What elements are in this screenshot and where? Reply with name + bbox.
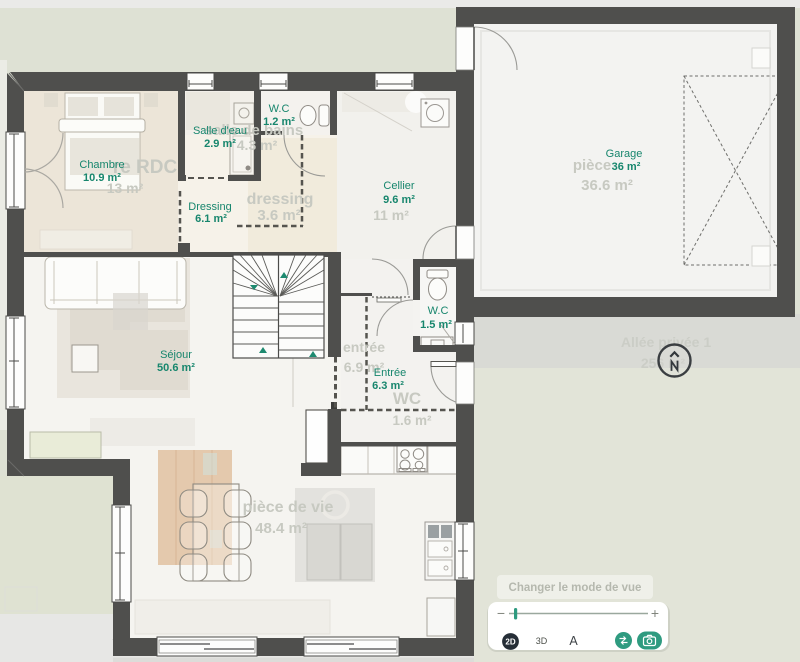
svg-text:36.6 m²: 36.6 m² [581, 177, 633, 194]
svg-text:6.1 m²: 6.1 m² [195, 213, 227, 225]
svg-text:entrée: entrée [343, 339, 385, 355]
svg-text:pièce de vie: pièce de vie [243, 499, 334, 516]
svg-text:Chambre: Chambre [79, 159, 124, 171]
svg-text:50.6 m²: 50.6 m² [157, 362, 195, 374]
svg-text:−: − [497, 605, 505, 621]
svg-text:10.9 m²: 10.9 m² [83, 172, 121, 184]
svg-text:W.C: W.C [269, 103, 290, 115]
svg-text:+: + [651, 605, 659, 621]
svg-text:Changer le mode de vue: Changer le mode de vue [509, 582, 642, 594]
svg-text:Entrée: Entrée [374, 367, 406, 379]
svg-text:Salle d'eau: Salle d'eau [193, 125, 247, 137]
svg-text:36 m²: 36 m² [612, 161, 641, 173]
svg-text:Cellier: Cellier [383, 180, 415, 192]
svg-text:1.6 m²: 1.6 m² [392, 413, 432, 428]
svg-text:A: A [569, 634, 578, 648]
svg-text:W.C: W.C [428, 305, 449, 317]
svg-text:6.3 m²: 6.3 m² [372, 380, 404, 392]
svg-text:1.5 m²: 1.5 m² [420, 319, 452, 331]
svg-text:11 m²: 11 m² [373, 207, 409, 223]
svg-text:1.2 m²: 1.2 m² [263, 116, 295, 128]
svg-text:4.3 m²: 4.3 m² [237, 137, 278, 153]
svg-text:dressing: dressing [247, 191, 314, 208]
svg-text:3D: 3D [536, 636, 548, 646]
svg-text:Garage: Garage [606, 148, 643, 160]
svg-text:2.9 m²: 2.9 m² [204, 138, 236, 150]
svg-text:2D: 2D [505, 638, 515, 647]
svg-text:3.6 m²: 3.6 m² [257, 207, 300, 224]
svg-text:Dressing: Dressing [188, 201, 231, 213]
svg-text:9.6 m²: 9.6 m² [383, 194, 415, 206]
svg-text:Séjour: Séjour [160, 349, 192, 361]
svg-text:48.4 m²: 48.4 m² [255, 520, 307, 537]
